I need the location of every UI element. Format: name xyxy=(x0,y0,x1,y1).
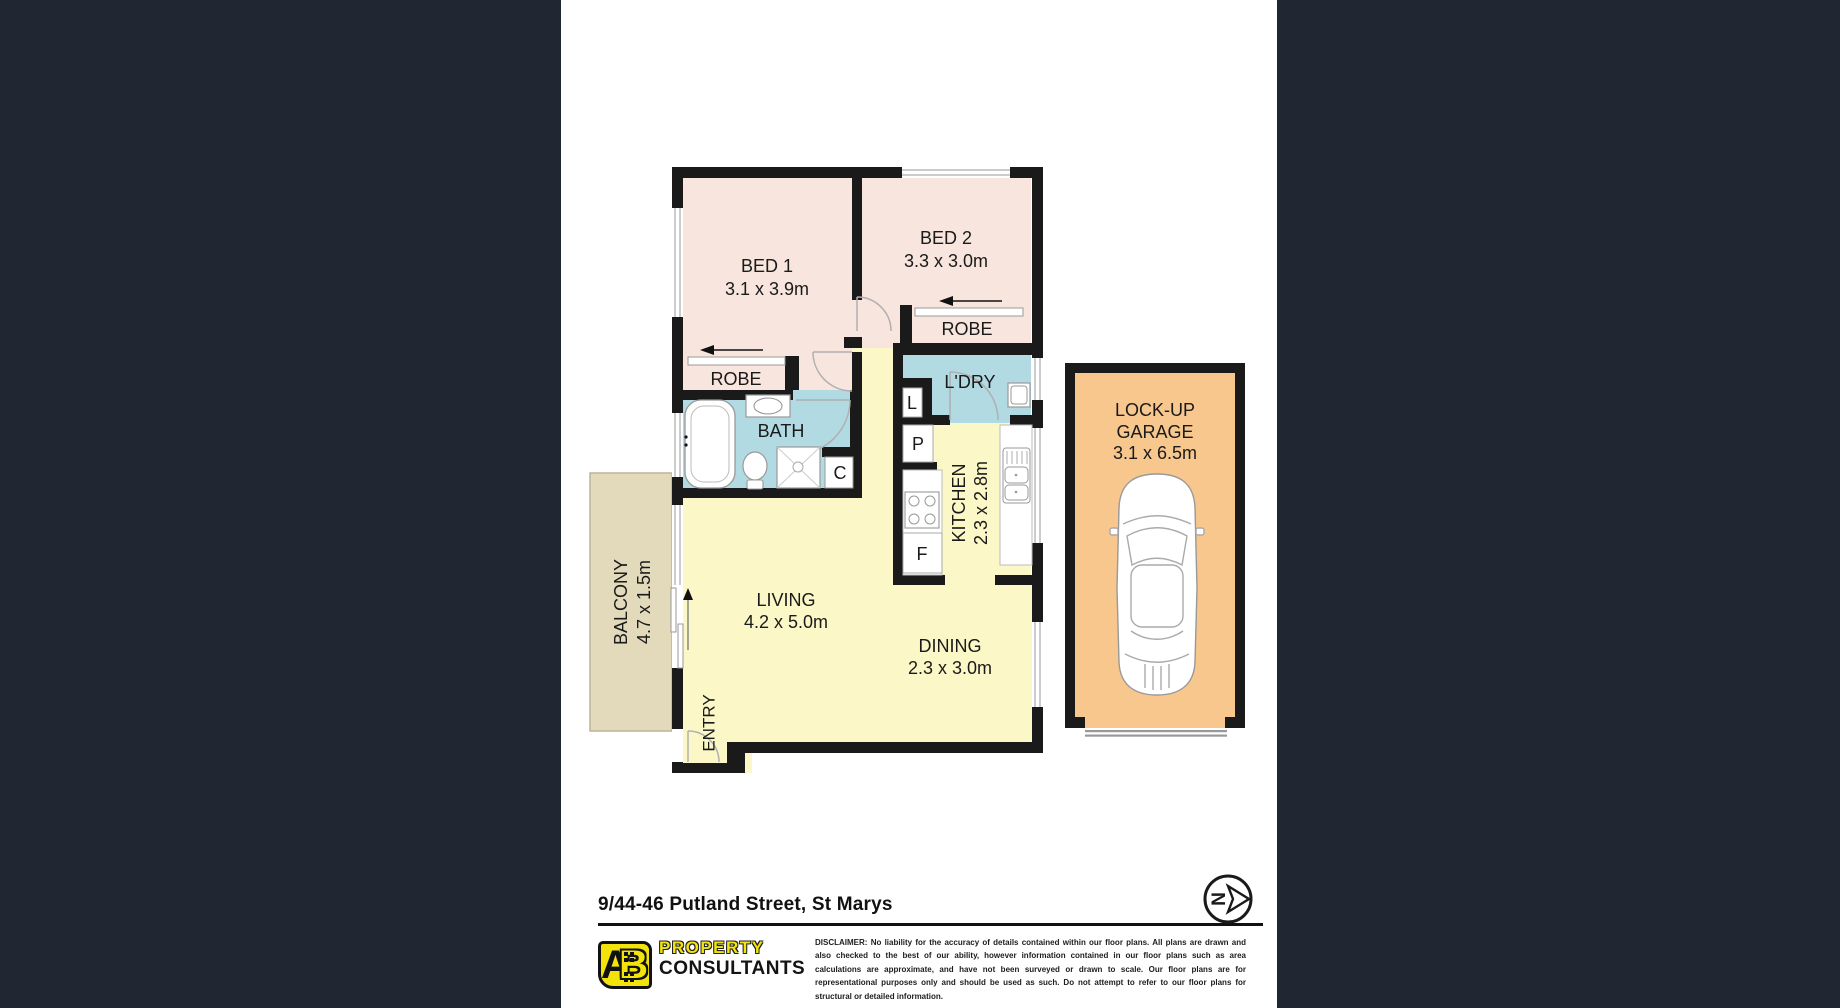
bed2-label: BED 2 xyxy=(920,228,972,248)
balcony-label: BALCONY xyxy=(611,559,631,645)
car-icon xyxy=(1110,474,1204,695)
address-underline xyxy=(598,923,1263,926)
page-background: BED 1 3.1 x 3.9m BED 2 3.3 x 3.0m ROBE R… xyxy=(0,0,1840,1008)
bed2-dims: 3.3 x 3.0m xyxy=(904,251,988,271)
logo-window-dots xyxy=(624,952,628,956)
disclaimer-body: No liability for the accuracy of details… xyxy=(815,938,1246,1001)
bed1-dims: 3.1 x 3.9m xyxy=(725,279,809,299)
dining-label: DINING xyxy=(919,636,982,656)
closet-marker: C xyxy=(834,463,847,483)
wall xyxy=(893,575,945,585)
kitchen-label: KITCHEN xyxy=(949,463,969,542)
wall xyxy=(1065,363,1075,728)
basin-icon xyxy=(746,395,790,417)
wall xyxy=(1235,363,1245,728)
wall xyxy=(1065,363,1245,373)
wall xyxy=(900,305,912,345)
disclaimer-label: DISCLAIMER: xyxy=(815,938,867,947)
sink-icon xyxy=(1003,448,1030,503)
wall xyxy=(727,742,745,773)
fridge-marker: F xyxy=(917,544,928,564)
balcony-floor xyxy=(590,473,672,731)
agency-logo: A B xyxy=(598,941,652,989)
floorplan-sheet: BED 1 3.1 x 3.9m BED 2 3.3 x 3.0m ROBE R… xyxy=(561,0,1277,1008)
garage-label-line1: LOCK-UP xyxy=(1115,400,1195,420)
garage-label-line2: GARAGE xyxy=(1116,422,1193,442)
disclaimer-text: DISCLAIMER: No liability for the accurac… xyxy=(815,936,1246,1003)
wall xyxy=(922,386,932,418)
wall xyxy=(1010,415,1032,425)
bed1-label: BED 1 xyxy=(741,256,793,276)
logo-word-consultants: CONSULTANTS xyxy=(659,958,805,980)
garage-dims: 3.1 x 6.5m xyxy=(1113,443,1197,463)
wall xyxy=(852,178,862,300)
window-bath-left xyxy=(672,413,683,477)
living-label: LIVING xyxy=(756,590,815,610)
logo-window-dots xyxy=(624,972,628,976)
logo-word-property: PROPERTY xyxy=(659,938,765,958)
kitchen-dims: 2.3 x 2.8m xyxy=(971,461,991,545)
north-label: N xyxy=(1207,892,1228,906)
entry-label: ENTRY xyxy=(700,694,719,751)
wall xyxy=(844,337,862,348)
wall xyxy=(903,462,937,470)
dining-dims: 2.3 x 3.0m xyxy=(908,658,992,678)
balcony-dims: 4.7 x 1.5m xyxy=(634,560,654,644)
logo-letter-b: B xyxy=(619,941,648,989)
wall xyxy=(1065,717,1085,728)
window-laundry-right xyxy=(1032,358,1043,400)
wall xyxy=(852,352,862,391)
window-dining-right xyxy=(1032,622,1043,707)
window-living-left xyxy=(672,505,683,585)
shower-icon xyxy=(777,447,820,488)
wall xyxy=(785,356,799,390)
bath-label: BATH xyxy=(758,421,805,441)
pantry-marker: P xyxy=(912,434,924,454)
window-kitchen-right xyxy=(1032,428,1043,543)
window-bed2-top xyxy=(902,167,1010,178)
living-dims: 4.2 x 5.0m xyxy=(744,612,828,632)
robe1-label: ROBE xyxy=(710,369,761,389)
laundry-label: L'DRY xyxy=(944,372,995,392)
linen-marker: L xyxy=(907,393,917,413)
wall xyxy=(672,488,862,498)
property-address: 9/44-46 Putland Street, St Marys xyxy=(598,894,893,916)
toilet-icon xyxy=(743,452,767,489)
wall xyxy=(745,742,1043,753)
robe2-label: ROBE xyxy=(941,319,992,339)
floorplan-drawing: BED 1 3.1 x 3.9m BED 2 3.3 x 3.0m ROBE R… xyxy=(561,0,1277,1008)
wall xyxy=(822,447,855,457)
wall xyxy=(1225,717,1245,728)
wall xyxy=(893,343,1043,355)
wall xyxy=(995,575,1043,585)
window-bed1-left xyxy=(672,208,683,317)
north-compass-icon: N xyxy=(1205,876,1251,922)
cooktop-icon xyxy=(905,492,939,528)
garage-door xyxy=(1085,730,1227,737)
